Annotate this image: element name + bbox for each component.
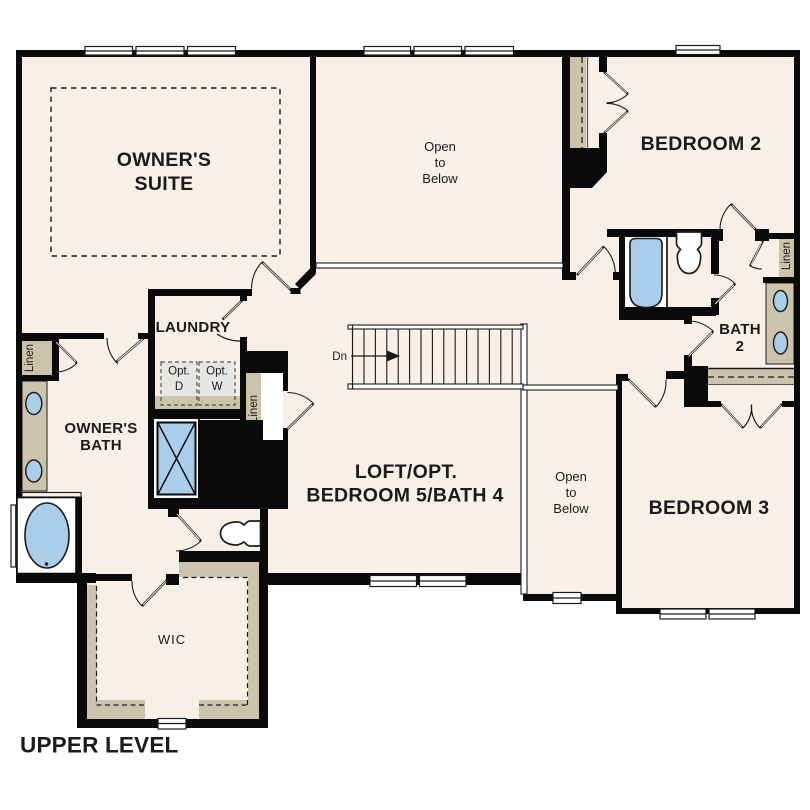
svg-text:to: to (566, 485, 577, 500)
svg-text:WIC: WIC (158, 632, 186, 647)
svg-text:Open: Open (555, 469, 587, 484)
svg-text:BEDROOM 3: BEDROOM 3 (649, 497, 770, 519)
svg-text:Linen: Linen (248, 395, 260, 423)
svg-text:Linen: Linen (781, 242, 793, 270)
svg-text:LOFT/OPT.: LOFT/OPT. (355, 461, 457, 483)
svg-text:OWNER'S: OWNER'S (64, 420, 137, 437)
svg-text:Open: Open (424, 139, 456, 154)
svg-text:Opt.: Opt. (168, 366, 190, 378)
svg-text:Below: Below (553, 501, 589, 516)
svg-text:Linen: Linen (24, 344, 36, 372)
svg-text:LAUNDRY: LAUNDRY (156, 319, 231, 336)
svg-text:BATH: BATH (80, 437, 122, 454)
svg-text:SUITE: SUITE (135, 173, 194, 195)
svg-text:Opt.: Opt. (206, 366, 228, 378)
svg-text:UPPER LEVEL: UPPER LEVEL (20, 733, 179, 758)
svg-text:OWNER'S: OWNER'S (117, 149, 212, 171)
svg-text:BATH: BATH (719, 321, 761, 338)
svg-text:Below: Below (422, 171, 458, 186)
svg-text:to: to (435, 155, 446, 170)
svg-text:D: D (175, 381, 183, 393)
svg-text:W: W (212, 381, 223, 393)
svg-text:Dn: Dn (332, 351, 347, 363)
svg-text:2: 2 (736, 338, 745, 355)
svg-text:BEDROOM 2: BEDROOM 2 (641, 133, 762, 155)
svg-text:BEDROOM 5/BATH 4: BEDROOM 5/BATH 4 (306, 485, 503, 507)
